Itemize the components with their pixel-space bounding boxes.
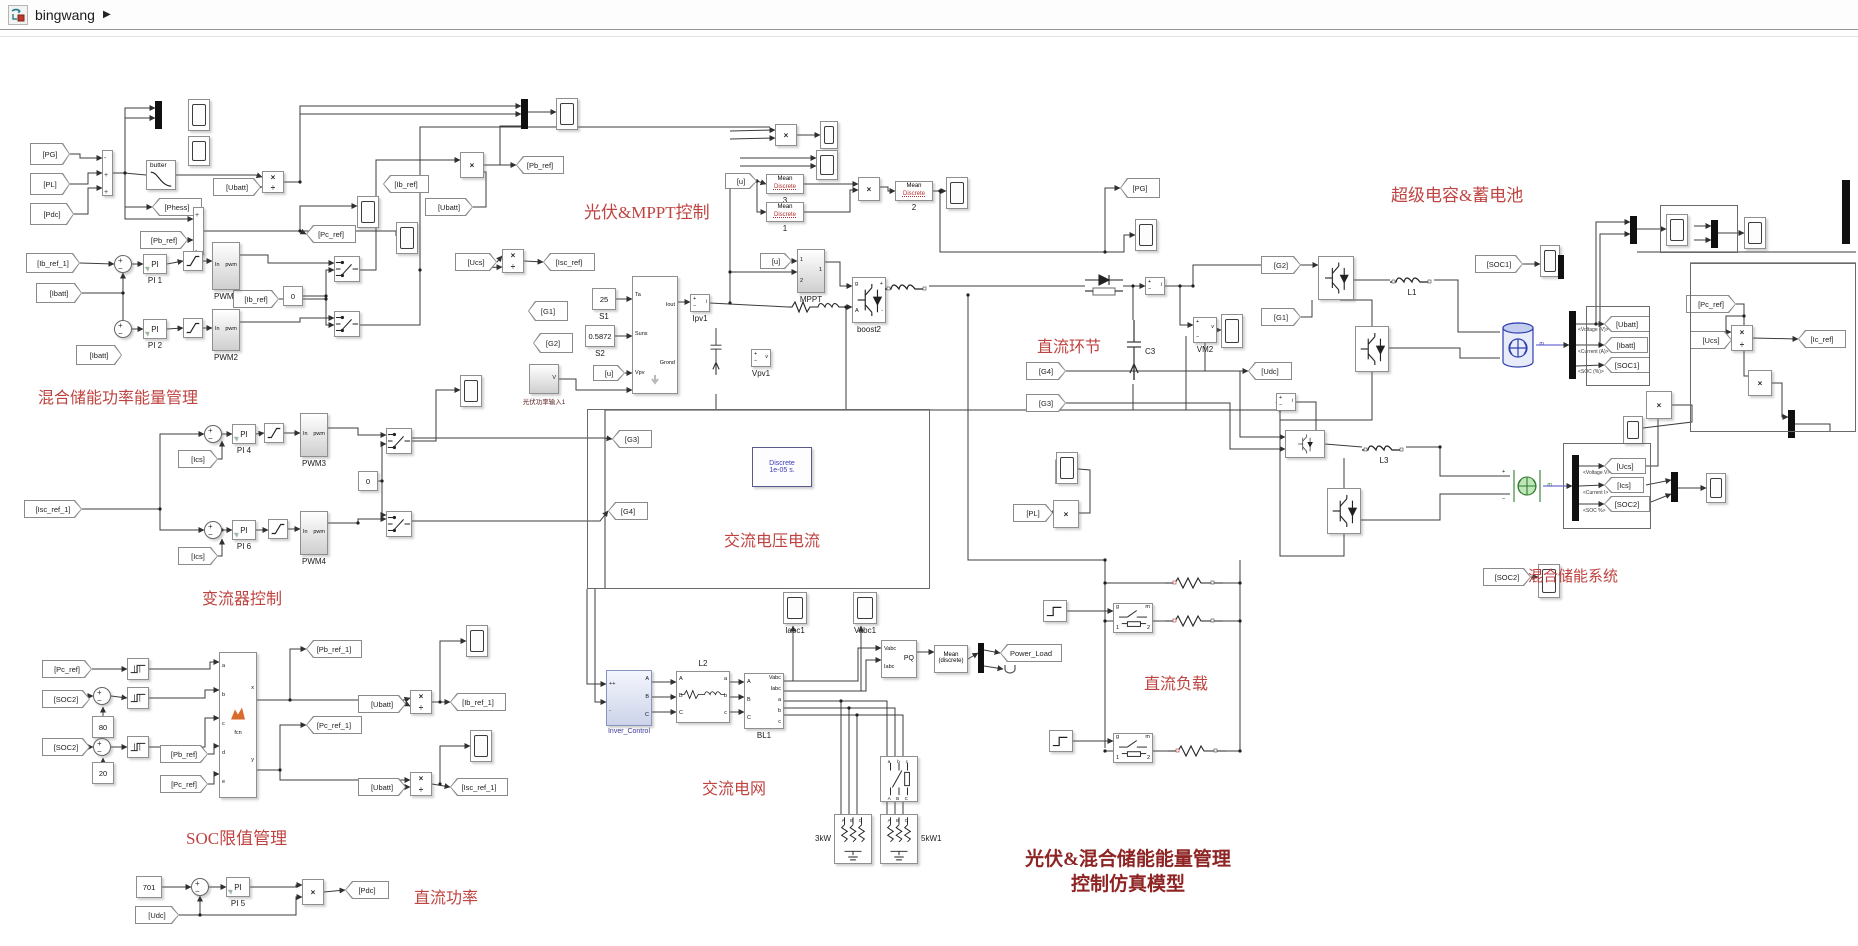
mux[interactable]	[978, 643, 984, 673]
resistor[interactable]	[1165, 614, 1223, 628]
scope-screen	[560, 103, 574, 125]
scope-block[interactable]	[460, 375, 482, 407]
product-block[interactable]: ×÷	[502, 249, 524, 273]
mux[interactable]	[1842, 180, 1850, 244]
port-label: m	[1145, 735, 1150, 741]
diode-block[interactable]	[1085, 272, 1123, 298]
from-tag-ucs[interactable]: [Ucs]	[455, 253, 497, 271]
breaker-block[interactable]: gm12	[1113, 733, 1153, 763]
signal-letter: i	[1161, 283, 1162, 289]
scope-block[interactable]	[853, 592, 877, 624]
boost-converter[interactable]: gA+-	[852, 277, 886, 323]
inverter-control-subsystem[interactable]: ++-ABC	[606, 670, 652, 726]
port-label: Grond	[660, 361, 675, 367]
tag-text: [Ibatt]	[77, 346, 121, 364]
rl-glyph	[681, 688, 725, 707]
sum-circle[interactable]: +−	[204, 425, 222, 443]
scope-block[interactable]	[1623, 416, 1643, 444]
port-label: V	[552, 376, 556, 382]
svg-text:C: C	[905, 818, 909, 824]
sum-circle[interactable]: +−	[93, 738, 111, 756]
product-block[interactable]: ×	[1646, 391, 1672, 419]
toolbar-strip	[0, 30, 1858, 37]
product-block[interactable]: ×	[775, 124, 797, 146]
port-label: pwm	[313, 432, 325, 438]
constant-block[interactable]: 701	[136, 876, 162, 898]
mean-discrete-block[interactable]: MeanDiscrete	[895, 181, 933, 201]
tag-text: [Ibatt]	[37, 284, 81, 302]
switch-block[interactable]	[386, 511, 412, 537]
goto-tag-pc-ref[interactable]: [Pc_ref]	[306, 225, 356, 243]
igbt-module[interactable]	[1355, 326, 1389, 372]
scope-block[interactable]	[946, 177, 968, 209]
port-label: Vabc	[884, 647, 896, 653]
constant-block[interactable]: 80	[92, 716, 114, 738]
terminator[interactable]	[1003, 663, 1017, 675]
port-label: B	[747, 698, 751, 704]
mean-discrete-block[interactable]: Mean(discrete)	[934, 645, 968, 673]
scope-block[interactable]	[820, 121, 838, 149]
three-phase-load[interactable]: ABC	[834, 814, 872, 864]
constant-value: 20	[99, 769, 107, 778]
mean-discrete-block[interactable]: MeanDiscrete	[766, 202, 804, 222]
scope-block[interactable]	[470, 730, 492, 762]
step-block[interactable]	[1043, 600, 1067, 622]
product-block[interactable]: ×	[302, 879, 324, 905]
tag-text: [G3]	[1027, 395, 1065, 411]
svg-text:b: b	[897, 759, 900, 765]
tag-text: [Udc]	[1249, 363, 1291, 379]
minus-port: −	[1196, 335, 1199, 341]
discrete-text: Discrete	[896, 190, 932, 198]
goto-tag-power-load[interactable]: Power_Load	[1000, 644, 1062, 662]
port-label: 2	[800, 279, 803, 285]
sum-circle[interactable]: +−	[114, 320, 132, 338]
supercapacitor[interactable]: +−m	[1510, 466, 1544, 506]
from-tag-pdc[interactable]: [Pdc]	[30, 203, 74, 225]
signal-letter: i	[1292, 399, 1293, 405]
tag-text: [Pc_ref_1]	[307, 717, 361, 733]
mean-discrete-block[interactable]: MeanDiscrete	[766, 174, 804, 194]
current-measure[interactable]: +−i	[1145, 277, 1165, 295]
pwm-subsystem[interactable]: Inpwm	[212, 309, 240, 351]
tag-text: [PG]	[1121, 179, 1159, 197]
rl-branch-block[interactable]: ABCabc	[676, 671, 730, 723]
tag-text: [Udc]	[136, 907, 178, 923]
from-tag-pl2[interactable]: [PL]	[1013, 504, 1053, 522]
plus-port: +	[1148, 280, 1151, 286]
minus-port: −	[1502, 497, 1505, 503]
mux[interactable]	[1630, 216, 1637, 244]
port-label: a	[778, 698, 781, 704]
tag-text: [G2]	[534, 334, 572, 352]
from-tag-ib-ref-1[interactable]: [Ib_ref_1]	[26, 253, 80, 273]
port-label: +	[880, 282, 883, 288]
breaker-block[interactable]: gm12	[1113, 603, 1153, 633]
minus-sign: −	[97, 747, 102, 756]
model-header-bar: bingwang ▶	[0, 0, 1858, 30]
constant-block[interactable]: 0	[283, 286, 303, 306]
relay-block[interactable]	[127, 736, 149, 758]
from-tag-ubatt3[interactable]: [Ubatt]	[358, 695, 406, 713]
tag-text: [Pc_ref]	[161, 776, 207, 792]
sum-block[interactable]: -++	[102, 150, 113, 196]
plus-port: +	[693, 297, 696, 303]
port-label: In	[215, 327, 220, 333]
sum-sign: +	[104, 172, 108, 179]
discrete-text: Discrete	[767, 183, 803, 191]
saturation-block[interactable]	[183, 251, 203, 271]
port-label: A	[855, 309, 859, 315]
voltage-measure[interactable]: +−v	[751, 349, 771, 367]
port-label: e	[222, 780, 225, 786]
tag-text: [Isc_ref]	[544, 254, 594, 270]
voltage-measure[interactable]: +−v	[1193, 317, 1217, 343]
scope-screen	[950, 182, 964, 204]
scope-block[interactable]	[188, 136, 210, 166]
tag-text: [SOC2]	[43, 739, 89, 755]
tag-text: [Ubatt]	[359, 696, 405, 712]
port-label: -	[881, 309, 883, 315]
goto-tag-pdc[interactable]: [Pdc]	[345, 881, 389, 899]
constant-value: 0.5872	[589, 332, 612, 341]
scope-screen	[1225, 319, 1239, 343]
inductor[interactable]	[1362, 440, 1406, 454]
switch-block[interactable]	[334, 311, 360, 337]
scope-block[interactable]	[816, 150, 838, 180]
series-rl-branch[interactable]	[788, 300, 844, 314]
minus-sign: −	[195, 887, 200, 896]
from-tag-ubatt4[interactable]: [Ubatt]	[358, 778, 406, 796]
minus-port: −	[754, 359, 757, 365]
switch-block[interactable]	[334, 256, 360, 282]
scope-screen	[192, 141, 206, 161]
pi-controller[interactable]: PI	[232, 520, 256, 540]
inductor[interactable]	[1390, 272, 1434, 286]
from-tag-g4[interactable]: [G4]	[1026, 362, 1066, 380]
op-sign: ×	[311, 888, 316, 897]
scope-block[interactable]	[396, 222, 418, 254]
tag-text: [Ucs]	[456, 254, 496, 270]
from-tag-soc1[interactable]: [SOC1]	[1475, 255, 1523, 273]
breadcrumb-arrow-icon[interactable]: ▶	[103, 9, 111, 20]
scope-block[interactable]	[556, 98, 578, 130]
saturation-block[interactable]	[268, 519, 288, 539]
goto-tag-isc-ref[interactable]: [Isc_ref]	[543, 253, 595, 271]
from-tag-pc-ref2[interactable]: [Pc_ref]	[42, 660, 92, 678]
tag-text: [G4]	[1027, 363, 1065, 379]
scope-block[interactable]	[1540, 245, 1560, 277]
from-tag-ubatt[interactable]: [Ubatt]	[213, 178, 261, 196]
scope-block[interactable]	[1056, 452, 1078, 484]
svg-text:A: A	[888, 796, 892, 801]
scope-block[interactable]	[466, 625, 488, 657]
port-label: b	[222, 693, 225, 699]
constant-value: 0	[291, 292, 295, 301]
tag-text: [Ics]	[179, 451, 217, 467]
scope-block[interactable]	[1135, 219, 1157, 251]
constant-block[interactable]: 20	[92, 762, 114, 784]
minus-port: −	[1148, 287, 1151, 293]
product-block[interactable]: ×÷	[262, 171, 284, 193]
m-port: m	[1539, 342, 1544, 348]
scope-screen	[400, 227, 414, 249]
butter-filter[interactable]: butter	[146, 160, 176, 190]
mux[interactable]	[1671, 472, 1678, 502]
step-block[interactable]	[1049, 730, 1073, 752]
pi-controller[interactable]: PI	[226, 877, 250, 897]
mean-text: Mean	[767, 175, 803, 183]
pwm-subsystem[interactable]: Inpwm	[212, 242, 240, 290]
pi-text: PI	[240, 526, 248, 535]
product-block[interactable]: ×÷	[410, 772, 432, 796]
from-tag-ics2[interactable]: [Ics]	[178, 547, 218, 565]
battery[interactable]: m	[1500, 320, 1536, 370]
port-label: c	[222, 722, 225, 728]
tag-text: [G1]	[1262, 309, 1300, 325]
section-label: 变流器控制	[202, 585, 282, 609]
matlab-fcn-block[interactable]: abcdexyfcn	[219, 652, 257, 798]
tag-text: [PG]	[31, 144, 69, 164]
pi-text: PI	[151, 325, 159, 334]
op-sign: ×	[419, 774, 424, 783]
current-measure[interactable]: +−i	[1276, 393, 1296, 411]
breadcrumb[interactable]: bingwang	[35, 7, 95, 23]
product-block[interactable]: ×	[858, 177, 880, 201]
sum-circle[interactable]: +−	[204, 521, 222, 539]
relay-block[interactable]	[127, 658, 149, 680]
from-tag-udc[interactable]: [Udc]	[135, 906, 179, 924]
tag-text: [Pdc]	[31, 204, 73, 224]
op-sign: ÷	[419, 703, 423, 712]
product-block[interactable]: ×	[1053, 500, 1079, 528]
goto-tag-ib-ref[interactable]: [Ib_ref]	[383, 175, 429, 193]
port-label: c	[724, 711, 727, 717]
saturation-block[interactable]	[264, 423, 284, 443]
relay-block[interactable]	[127, 687, 149, 709]
scope-screen	[1544, 250, 1556, 272]
goto-tag-g2[interactable]: [G2]	[533, 333, 573, 353]
section-label: 交流电压电流	[724, 527, 820, 551]
mppt-subsystem[interactable]: 121	[797, 249, 825, 293]
scope-block[interactable]	[783, 592, 807, 624]
from-tag-ibatt2[interactable]: [Ibatt]	[76, 345, 122, 365]
scope-screen	[192, 104, 206, 126]
signal-letter: v	[765, 355, 768, 361]
port-label: In	[215, 263, 220, 269]
mux[interactable]	[521, 99, 528, 129]
section-label: 超级电容&蓄电池	[1391, 181, 1523, 206]
from-tag-pc-ref3[interactable]: [Pc_ref]	[160, 775, 208, 793]
pi-text: PI	[151, 260, 159, 269]
port-label: C	[747, 716, 751, 722]
port-label: 1	[819, 268, 822, 274]
tag-text: [SOC2]	[43, 691, 89, 707]
scope-block[interactable]	[1706, 473, 1726, 503]
port-label: Vpv	[635, 371, 644, 377]
port-label: 1	[800, 258, 803, 264]
capacitor[interactable]	[708, 328, 724, 378]
igbt-module[interactable]	[1318, 256, 1354, 300]
minus-sign: −	[118, 264, 123, 273]
from-tag-ibatt[interactable]: [Ibatt]	[36, 283, 82, 303]
signal-letter: i	[706, 300, 707, 306]
scope-screen	[1139, 224, 1153, 246]
svg-text:B: B	[896, 818, 899, 824]
pwm-subsystem[interactable]: Inpwm	[300, 413, 328, 457]
goto-tag-pb-ref2[interactable]: [Pb_ref]	[516, 156, 564, 174]
goto-tag-udc[interactable]: [Udc]	[1248, 362, 1292, 380]
from-tag-u2[interactable]: [u]	[760, 253, 792, 269]
scope-screen	[1748, 222, 1762, 244]
from-tag-pb-ref[interactable]: [Pb_ref]	[140, 231, 188, 249]
pwm-subsystem[interactable]: Inpwm	[300, 511, 328, 555]
from-tag-ics[interactable]: [Ics]	[178, 450, 218, 468]
from-tag-pg[interactable]: [PG]	[30, 143, 70, 165]
minus-sign: −	[208, 434, 213, 443]
section-label: SOC限值管理	[186, 824, 287, 849]
from-tag-u1[interactable]: [u]	[725, 173, 757, 189]
scope-screen	[361, 201, 375, 223]
minus-sign: −	[118, 329, 123, 338]
igbt-module[interactable]	[1285, 430, 1325, 458]
from-tag-ib-ref2[interactable]: [Ib_ref]	[233, 290, 279, 308]
resistor[interactable]	[1165, 576, 1223, 590]
goto-tag-pb-ref-1[interactable]: [Pb_ref_1]	[306, 640, 362, 658]
sum-circle[interactable]: +−	[93, 687, 111, 705]
resistor[interactable]	[1168, 744, 1226, 758]
svg-text:B: B	[896, 796, 899, 801]
tag-text: [G1]	[529, 302, 567, 320]
scope-screen	[824, 126, 834, 144]
product-block[interactable]: ×	[460, 152, 484, 178]
pi-text: PI	[240, 430, 248, 439]
sum-sign: -	[104, 155, 106, 162]
from-tag-soc2b[interactable]: [SOC2]	[42, 738, 90, 756]
from-tag-soc2c[interactable]: [SOC2]	[1483, 568, 1531, 586]
pi-controller[interactable]: PI	[232, 424, 256, 444]
tag-text: [Isc_ref_1]	[25, 501, 81, 517]
goto-tag-ib-ref-1[interactable]: [Ib_ref_1]	[450, 693, 506, 711]
goto-tag-pg[interactable]: [PG]	[1120, 178, 1160, 198]
three-phase-vi-measure[interactable]: ABCVabcIabcabc	[744, 673, 784, 729]
port-label: a	[222, 664, 225, 670]
section-label: 交流电网	[702, 775, 766, 799]
three-phase-breaker[interactable]: abcABC	[880, 756, 918, 802]
scope-block[interactable]	[188, 99, 210, 131]
wire-frame	[1660, 205, 1738, 253]
sum-circle[interactable]: +−	[191, 878, 209, 896]
port-label: 2	[1147, 626, 1150, 632]
scope-block[interactable]	[357, 196, 379, 228]
tag-text: [Isc_ref_1]	[451, 779, 507, 795]
port-label: d	[222, 751, 225, 757]
plus-port: +	[754, 352, 757, 358]
op-sign: ×	[419, 692, 424, 701]
product-block[interactable]: ×÷	[410, 690, 432, 714]
simulink-model-icon[interactable]	[8, 5, 28, 25]
tag-text: [SOC2]	[1484, 569, 1530, 585]
sum-sign: +	[104, 189, 108, 196]
goto-tag-g1[interactable]: [G1]	[528, 301, 568, 321]
from-tag-pb-ref3[interactable]: [Pb_ref]	[160, 745, 208, 763]
section-label: 直流环节	[1037, 333, 1101, 357]
demux[interactable]	[1558, 255, 1564, 279]
scope-screen	[464, 380, 478, 402]
demux[interactable]	[1569, 311, 1576, 379]
wire-frame	[587, 409, 930, 589]
model-canvas[interactable]: [PG][PL][Pdc][Ib_ref_1][Ibatt][Ibatt][Ph…	[0, 0, 1858, 946]
svg-text:A: A	[888, 818, 892, 824]
port-label: B	[645, 695, 649, 701]
goto-tag-isc-ref-1[interactable]: [Isc_ref_1]	[450, 778, 508, 796]
mux[interactable]	[155, 101, 162, 129]
signal-letter: v	[1211, 325, 1214, 331]
discrete-text: (discrete)	[935, 658, 967, 664]
constant-block[interactable]: 25	[592, 288, 616, 310]
port-label: a	[724, 677, 727, 683]
from-tag-soc2[interactable]: [SOC2]	[42, 690, 90, 708]
capacitor[interactable]	[1126, 320, 1142, 384]
pv-power-input[interactable]: V	[529, 364, 559, 394]
pv-array-block[interactable]: TaSunsVpvIoutGrond	[632, 276, 678, 394]
svg-text:a: a	[888, 760, 891, 765]
port-label: y	[251, 758, 254, 764]
port-label: In	[303, 432, 308, 438]
tag-text: [SOC1]	[1476, 256, 1522, 272]
from-tag-g3[interactable]: [G3]	[1026, 394, 1066, 412]
tag-text: [Pb_ref]	[141, 232, 187, 248]
goto-tag-pc-ref-1[interactable]: [Pc_ref_1]	[306, 716, 362, 734]
inductor[interactable]	[885, 279, 929, 293]
pi-controller[interactable]: PI	[143, 254, 167, 274]
plus-port: +	[1279, 396, 1282, 402]
pi-controller[interactable]: PI	[143, 319, 167, 339]
tag-text: [Pdc]	[346, 882, 388, 898]
sum-circle[interactable]: +−	[114, 255, 132, 273]
port-label: Suns	[635, 332, 648, 338]
from-tag-ubatt2[interactable]: [Ubatt]	[425, 198, 473, 216]
sum-block[interactable]: +-	[193, 207, 204, 255]
from-tag-g2[interactable]: [G2]	[1261, 256, 1301, 274]
op-sign: ÷	[511, 262, 515, 271]
tag-text: [Ib_ref]	[234, 291, 278, 307]
from-tag-pl[interactable]: [PL]	[30, 173, 70, 195]
constant-block[interactable]: 0.5872	[585, 325, 615, 347]
scope-block[interactable]	[1221, 314, 1243, 348]
three-phase-load[interactable]: ABC	[880, 814, 918, 864]
port-label: Vabc	[769, 676, 781, 682]
scope-screen	[474, 735, 488, 757]
from-tag-g1[interactable]: [G1]	[1261, 308, 1301, 326]
constant-block[interactable]: 0	[358, 471, 378, 491]
op-sign: ×	[470, 161, 475, 170]
minus-port: −	[693, 304, 696, 310]
port-label: Iabc	[771, 687, 781, 693]
switch-block[interactable]	[386, 428, 412, 454]
saturation-block[interactable]	[183, 318, 203, 338]
current-measure[interactable]: +−i	[690, 294, 710, 312]
from-tag-isc-ref-1[interactable]: [Isc_ref_1]	[24, 500, 82, 518]
pq-measure-block[interactable]: VabcIabcPQ	[881, 640, 917, 678]
scope-block[interactable]	[1744, 217, 1766, 249]
op-sign: ×	[1064, 510, 1069, 519]
igbt-module[interactable]	[1327, 488, 1361, 534]
from-tag-u3[interactable]: [u]	[593, 365, 625, 381]
plus-port: +	[1196, 320, 1199, 326]
tag-text: [Pc_ref]	[43, 661, 91, 677]
port-label: g	[1116, 605, 1119, 611]
